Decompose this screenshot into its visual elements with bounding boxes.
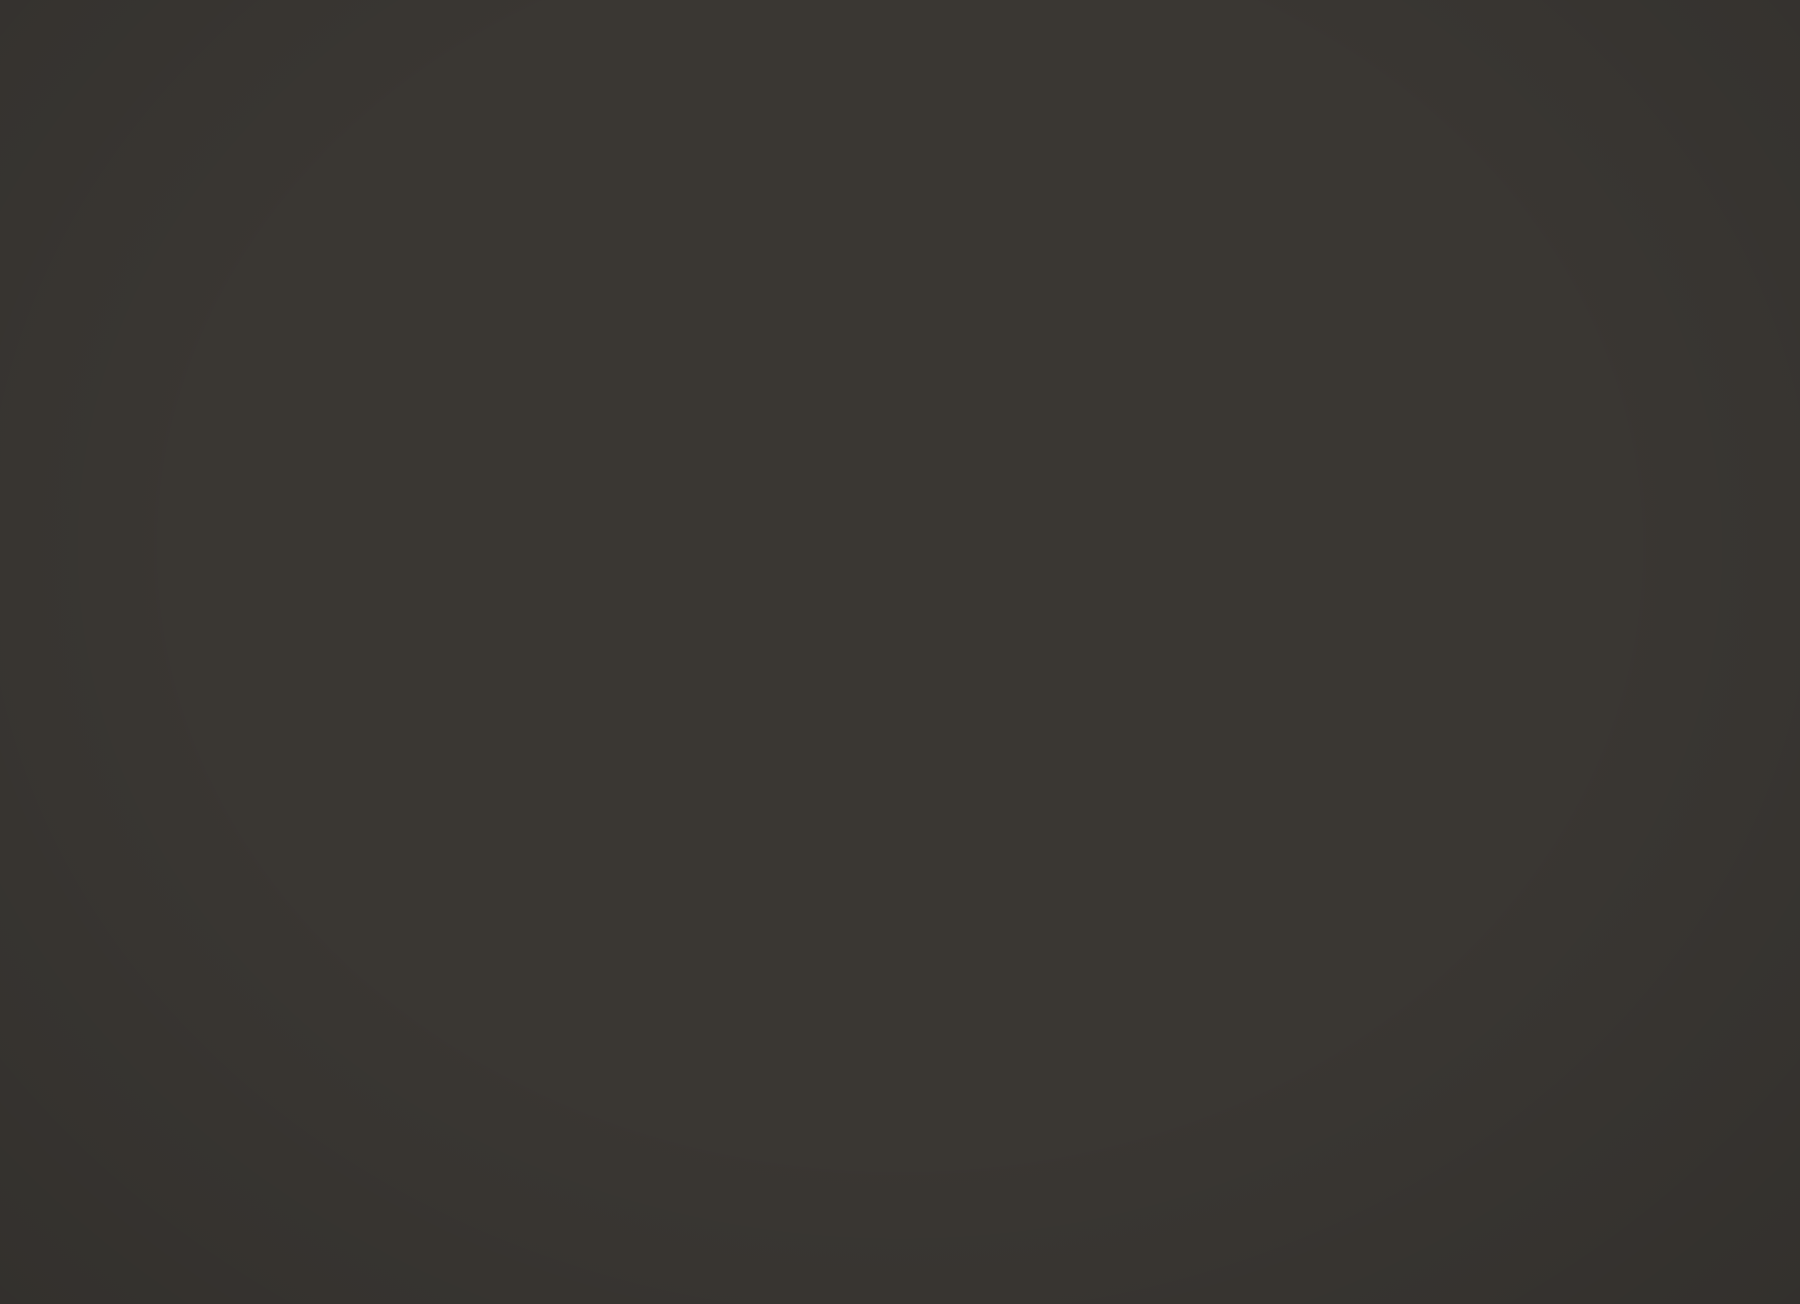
relay-b2-value: 45: [1003, 488, 1029, 514]
contact-b1-point: [628, 869, 640, 881]
title-french: Boîte à relais: [898, 1052, 1134, 1085]
relay-a1-value: 45: [631, 642, 657, 668]
terminal-blgu: [771, 937, 793, 959]
label-wire-blgn: blgn: [1289, 469, 1342, 497]
label-terminal-b: b: [355, 487, 370, 515]
org-french: DG PTT Services des télécommunications: [112, 1164, 532, 1187]
label-circuit1-number: 1: [1372, 409, 1386, 437]
drawing-number: Tf 3-36.891.a: [1202, 1141, 1478, 1193]
label-c1-value: 3μ: [509, 662, 539, 692]
relay-coil-B2: 45: [998, 470, 1034, 553]
punch-hole: [684, 52, 729, 97]
label-wire-w: w: [487, 319, 508, 347]
punch-hole: [795, 47, 849, 101]
label-apparat: Apparat: [1442, 385, 1541, 415]
label-relay-b2-pin-right: 3: [1042, 506, 1055, 532]
label-relay-a2-pin-top: 4: [764, 610, 777, 636]
label-apparat1-sup: 1: [1550, 408, 1564, 436]
label-c3-value: 3μ: [1016, 270, 1046, 300]
label-relay-b1-winding: B: [1042, 312, 1062, 342]
label-c2-name: C2: [896, 617, 929, 647]
label-c3-name: C3: [1000, 194, 1033, 224]
label-wire-blgb: blgb: [1060, 470, 1113, 498]
subtitle-french: pour montage en parallèle d'appareils té…: [898, 1094, 1459, 1115]
relay-a2-value: 45: [774, 642, 800, 668]
label-contact-b1: b1: [662, 846, 687, 878]
label-relay-b1-pin-right: 2: [1043, 355, 1056, 381]
label-terminal-a: a: [356, 337, 371, 365]
label-wire-bl: bl: [493, 469, 515, 497]
org-german: GD PTT Fernmeldedienste: [112, 1135, 375, 1158]
label-relay-b1-pin-left: 1: [979, 355, 992, 381]
relay-coil-A2: 45: [735, 640, 815, 668]
label-c2-value: 3μ: [906, 663, 936, 693]
subtitle-german: zur Parallelschaltung von Telefonapparat…: [114, 1092, 569, 1113]
label-relay-b2-pin-left: 4: [979, 506, 992, 532]
contact-b2-point: [776, 786, 788, 798]
label-wire-blgu: blgu: [788, 891, 841, 919]
label-c4-name: C4: [999, 568, 1033, 598]
label-appareil: Appareil: [1442, 420, 1546, 450]
label-contact-b2: b2: [810, 760, 835, 792]
punch-hole: [98, 35, 152, 89]
label-wire-wgb: wgb: [1109, 316, 1160, 344]
schematic-svg: Art.323.101.6: [0, 0, 1800, 1304]
terminal-b: [381, 489, 403, 511]
relay-coil-B1: 45: [1000, 318, 1036, 405]
label-relay-a1-pin-top: 1: [617, 610, 630, 636]
terminal-guw: [624, 937, 646, 959]
label-c1-name: C1: [500, 616, 533, 646]
label-relay-a2-pin-bottom: 3: [764, 680, 777, 706]
label-c4-value: 3μ: [1008, 636, 1038, 666]
circuit-labels: a b w bl wgb gnw blgb blgn blbn bnw guw …: [222, 194, 1564, 1007]
label-central: Central: [222, 426, 312, 456]
label-apparat2-caption: Apparat / Appareil 2: [598, 977, 843, 1007]
label-wire-gnw: gnw: [1293, 318, 1344, 346]
terminal-a: [381, 339, 403, 361]
label-relay-b2-winding: B: [1040, 464, 1060, 494]
date: 25.9.51: [904, 1151, 968, 1172]
label-wire-bnw: bnw: [580, 764, 631, 792]
contact-a2-point: [1153, 495, 1165, 507]
terminal-blgn: [1372, 489, 1394, 511]
label-contact-a1: a1: [1236, 370, 1260, 402]
title-german: Relaiskasten: [112, 1050, 350, 1088]
label-apparat2-number: 2: [700, 934, 715, 964]
label-relay-a1-pin-bottom: 2: [619, 680, 632, 706]
label-wire-guw: guw: [580, 889, 631, 917]
contact-a1-point: [1256, 346, 1268, 358]
label-relay-a2-winding: A: [789, 609, 807, 637]
circuit-wires: [403, 227, 1372, 937]
label-roman-one: I: [316, 410, 328, 443]
sheet-number: 7.3: [733, 1132, 800, 1185]
photographed-schematic-sheet: Art.323.101.6: [0, 0, 1800, 1304]
label-contact-a2: a2: [1130, 528, 1154, 560]
relay-coil-A1: 45: [590, 640, 675, 668]
art-number: Art.323.101.6: [93, 122, 248, 148]
relay-b1-value: 45: [1005, 338, 1031, 364]
label-relay-a1-winding: A: [642, 609, 660, 637]
terminal-gnw: [1372, 339, 1394, 361]
punch-hole: [1395, 39, 1449, 93]
label-amt: Amt: [222, 391, 273, 421]
label-wire-blbn: blbn: [792, 710, 845, 738]
